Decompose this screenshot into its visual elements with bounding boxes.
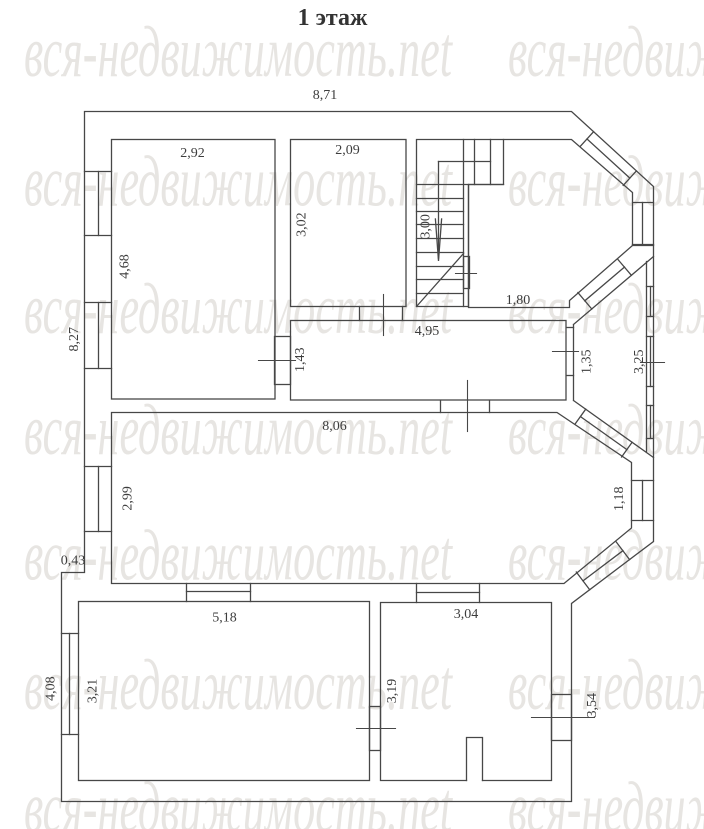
svg-text:3,04: 3,04	[454, 607, 479, 622]
svg-text:вся-недвижимость.net: вся-недвижимость.net	[508, 269, 704, 349]
svg-text:4,68: 4,68	[118, 254, 133, 279]
svg-text:2,92: 2,92	[180, 146, 205, 161]
svg-text:8,71: 8,71	[313, 88, 338, 103]
svg-text:вся-недвижимость.net: вся-недвижимость.net	[24, 768, 453, 829]
svg-text:вся-недвижимость.net: вся-недвижимость.net	[24, 269, 453, 349]
svg-text:вся-недвижимость.net: вся-недвижимость.net	[24, 12, 453, 92]
svg-text:вся-недвижимость.net: вся-недвижимость.net	[24, 390, 453, 470]
svg-text:1,35: 1,35	[580, 349, 595, 374]
svg-text:2,99: 2,99	[121, 486, 136, 511]
svg-text:вся-недвижимость.net: вся-недвижимость.net	[508, 645, 704, 725]
svg-text:3,00: 3,00	[418, 214, 433, 239]
svg-text:4,95: 4,95	[415, 324, 440, 339]
svg-text:вся-недвижимость.net: вся-недвижимость.net	[508, 12, 704, 92]
svg-text:1,43: 1,43	[293, 347, 308, 372]
svg-text:3,19: 3,19	[385, 679, 400, 704]
svg-text:вся-недвижимость.net: вся-недвижимость.net	[508, 390, 704, 470]
svg-text:5,18: 5,18	[212, 611, 237, 626]
svg-text:0,43: 0,43	[61, 554, 86, 569]
svg-text:3,02: 3,02	[295, 212, 310, 237]
svg-text:вся-недвижимость.net: вся-недвижимость.net	[508, 768, 704, 829]
svg-text:1 этаж: 1 этаж	[298, 5, 368, 31]
svg-text:2,09: 2,09	[335, 143, 360, 158]
svg-text:3,25: 3,25	[632, 349, 647, 374]
svg-text:4,08: 4,08	[44, 676, 59, 701]
svg-text:8,06: 8,06	[322, 419, 347, 434]
svg-text:3,21: 3,21	[86, 679, 101, 704]
svg-text:1,18: 1,18	[612, 487, 627, 512]
svg-text:вся-недвижимость.net: вся-недвижимость.net	[24, 142, 453, 222]
svg-text:1,80: 1,80	[506, 293, 531, 308]
svg-text:вся-недвижимость.net: вся-недвижимость.net	[508, 142, 704, 222]
svg-text:3,54: 3,54	[585, 693, 600, 718]
svg-text:8,27: 8,27	[67, 327, 82, 352]
